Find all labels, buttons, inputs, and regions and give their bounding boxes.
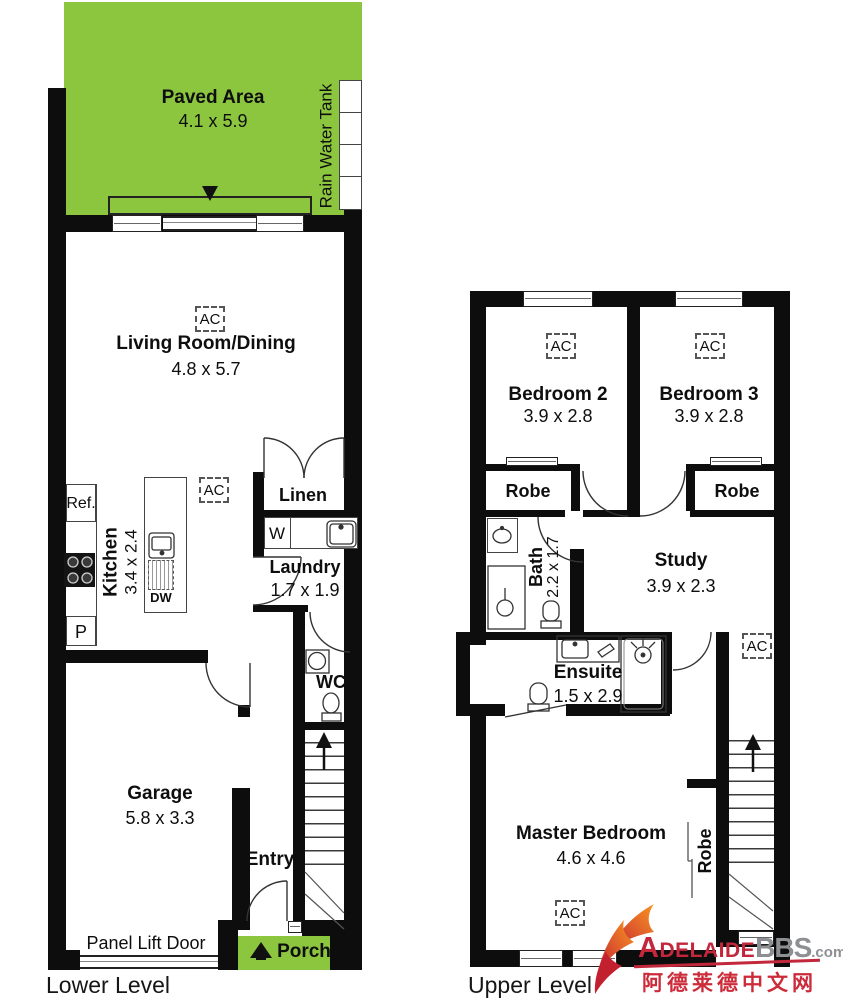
sliding-door <box>163 216 257 231</box>
ac-unit-bedroom2: AC <box>546 333 576 359</box>
paved-area-dims: 4.1 x 5.9 <box>178 112 247 131</box>
bedroom2-dims: 3.9 x 2.8 <box>523 407 592 426</box>
stairs-upper <box>729 728 774 874</box>
robe-left-label: Robe <box>506 482 551 501</box>
pantry-label: P <box>75 623 87 642</box>
ac-unit-kitchen: AC <box>199 477 229 503</box>
ensuite-name: Ensuite <box>554 663 623 683</box>
rain-water-tank-label: Rain Water Tank <box>318 84 335 209</box>
wc-basin <box>306 650 329 673</box>
ac-unit-bedroom3: AC <box>695 333 725 359</box>
wall <box>48 950 80 970</box>
wall <box>570 549 584 632</box>
wall <box>48 650 208 663</box>
wall <box>571 464 580 511</box>
bedroom3-name: Bedroom 3 <box>659 385 758 405</box>
window <box>519 950 563 967</box>
kitchen-dims: 3.4 x 2.4 <box>123 529 140 594</box>
ac-unit-master: AC <box>555 900 585 926</box>
linen-label: Linen <box>279 486 327 505</box>
window <box>675 291 743 307</box>
garage-dims: 5.8 x 3.3 <box>125 809 194 828</box>
wc-label: WC <box>316 673 346 692</box>
window <box>256 215 304 232</box>
cooktop <box>64 553 95 587</box>
wall <box>486 510 565 517</box>
bedroom3-dims: 3.9 x 2.8 <box>674 407 743 426</box>
bath-vanity <box>487 518 518 553</box>
master-robe-label: Robe <box>696 829 714 874</box>
wall <box>238 705 250 717</box>
master-bedroom-dims: 4.6 x 4.6 <box>556 849 625 868</box>
wall <box>627 307 640 468</box>
ac-unit-hall: AC <box>742 633 772 659</box>
wall <box>350 605 362 612</box>
floor-plan: Paved Area 4.1 x 5.9 Rain Water Tank AC … <box>0 0 843 1000</box>
kitchen-bench-edge <box>96 484 97 646</box>
stairs-lower <box>305 730 344 872</box>
rain-water-tank-cell <box>339 80 362 113</box>
dishwasher-label: DW <box>150 591 172 605</box>
wall <box>330 930 362 970</box>
panel-lift-door <box>80 955 218 969</box>
laundry-name: Laundry <box>269 558 340 577</box>
robe-right-label: Robe <box>715 482 760 501</box>
paved-area-name: Paved Area <box>162 88 265 108</box>
bath-toilet <box>541 601 561 628</box>
wall <box>661 632 672 714</box>
master-bedroom-name: Master Bedroom <box>516 824 666 844</box>
bath-name: Bath <box>527 547 545 587</box>
logo-chinese-tagline: 阿德莱德中文网 <box>642 967 817 997</box>
study-dims: 3.9 x 2.3 <box>646 577 715 596</box>
wall <box>253 510 362 517</box>
window <box>523 291 593 307</box>
laundry-dims: 1.7 x 1.9 <box>270 581 339 600</box>
wall <box>344 205 362 970</box>
wall <box>305 722 362 730</box>
door-threshold <box>288 921 302 933</box>
wall <box>690 510 774 517</box>
living-room-dims: 4.8 x 5.7 <box>171 360 240 379</box>
robe-sliding-door <box>506 457 558 466</box>
fridge-label: Ref. <box>66 496 95 513</box>
porch-label: Porch <box>277 942 331 962</box>
window <box>112 215 162 232</box>
adelaidebbs-logo: AdelaideBBS.com 阿德莱德中文网 <box>588 898 843 1000</box>
bedroom2-name: Bedroom 2 <box>508 385 607 405</box>
rain-water-tank-cell <box>339 176 362 210</box>
ensuite-dims: 1.5 x 2.9 <box>553 687 622 706</box>
rain-water-tank-cell <box>339 144 362 177</box>
garage-name: Garage <box>127 784 192 804</box>
bath-dims: 2.2 x 1.7 <box>546 536 562 597</box>
paved-step-outline <box>108 196 312 215</box>
study-name: Study <box>655 551 708 571</box>
dishwasher <box>148 560 174 590</box>
wall <box>470 710 486 967</box>
washer-label: W <box>269 525 285 543</box>
living-room-name: Living Room/Dining <box>116 334 295 354</box>
wall <box>293 605 305 930</box>
wc-toilet <box>322 693 341 721</box>
lower-level-caption: Lower Level <box>46 972 170 999</box>
panel-lift-door-label: Panel Lift Door <box>86 934 205 953</box>
wall <box>456 632 672 640</box>
wall <box>218 920 238 970</box>
upper-level-caption: Upper Level <box>468 972 592 999</box>
kitchen-name: Kitchen <box>102 527 121 597</box>
wall <box>583 510 629 517</box>
rain-water-tank-cell <box>339 112 362 145</box>
wall <box>686 464 695 511</box>
ensuite-shower <box>621 636 666 712</box>
wall <box>687 779 729 788</box>
logo-text-adelaide: Adelaide <box>638 932 755 965</box>
ac-unit-living: AC <box>195 306 225 332</box>
wall <box>470 291 486 633</box>
master-robe-door <box>688 822 692 898</box>
laundry-bench-divider <box>290 517 291 549</box>
entry-label: Entry <box>246 850 295 870</box>
bath-shower <box>488 566 525 629</box>
ensuite-toilet <box>528 683 549 711</box>
robe-sliding-door <box>710 457 762 466</box>
wall <box>774 291 790 967</box>
